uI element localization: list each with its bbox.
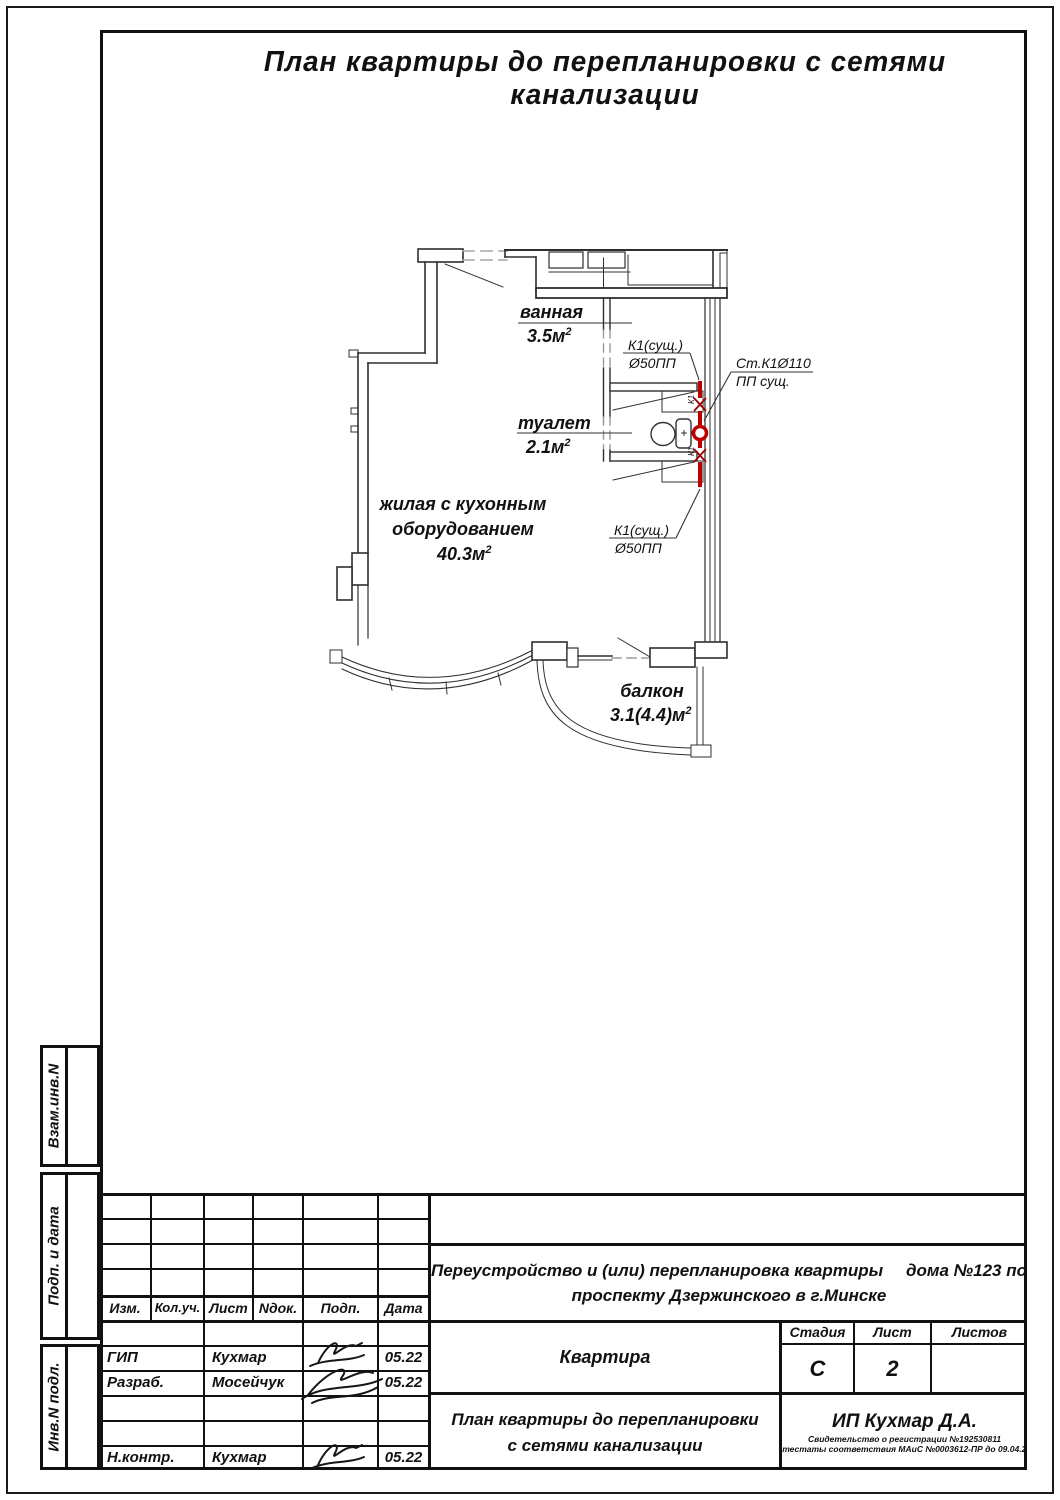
label-wc: туалет [518,413,591,433]
col-izm: Изм. [100,1295,150,1320]
col-podp: Подп. [304,1295,377,1320]
row-gip-role: ГИП [100,1345,210,1370]
object-line1b: дома №123 по [906,1258,1027,1284]
col-koluch: Кол.уч. [152,1295,203,1320]
svg-text:К1(сущ.): К1(сущ.) [628,337,683,353]
stamp-podp-data: Подп. и дата [40,1172,100,1340]
row-razrab-date: 05.22 [379,1370,428,1395]
col-list: Лист [205,1295,252,1320]
toilet-icon [651,419,691,448]
sheet-title-line1: План квартиры до перепланировки [451,1407,758,1433]
svg-text:40.3м2: 40.3м2 [436,544,491,564]
col-data: Дата [379,1295,428,1320]
svg-text:3.5м2: 3.5м2 [527,326,571,346]
row-razrab-name: Мосейчук [205,1370,309,1395]
sheets-value [932,1345,1027,1392]
svg-text:3.1(4.4)м2: 3.1(4.4)м2 [610,705,691,725]
floor-plan: К1 К1 ванная 3.5м2 туалет 2.1м2 жилая с [300,230,850,790]
title-block: Изм. Кол.уч. Лист Nдок. Подп. Дата ГИП К… [100,1193,1027,1470]
sheets-label: Листов [932,1320,1027,1343]
stamp-inv-podl: Инв.N подл. [40,1344,100,1470]
row-nkontr-role: Н.контр. [100,1445,210,1470]
row-gip-date: 05.22 [379,1345,428,1370]
stamp-inv-podl-label: Инв.N подл. [46,1362,63,1451]
row-razrab-role: Разраб. [100,1370,210,1395]
stage-label: Стадия [782,1320,853,1343]
col-ndok: Nдок. [254,1295,302,1320]
firm-cell: ИП Кухмар Д.А. Свидетельство о регистрац… [782,1395,1027,1470]
row-nkontr-date: 05.22 [379,1445,428,1470]
stamp-vzam-inv: Взам.инв.N [40,1045,100,1167]
stamp-podp-data-empty [68,1175,97,1337]
drawing-sheet: План квартиры до перепланировки с сетями… [0,0,1060,1500]
object-line2: проспекту Дзержинского в г.Минске [572,1283,887,1309]
svg-text:Ø50ПП: Ø50ПП [628,355,677,371]
pipe-mark-top: К1 [687,395,696,404]
stamp-inv-podl-empty [68,1347,97,1467]
object-line1a: Переустройство и (или) перепланировка кв… [431,1258,883,1284]
firm-certificates: Аттестаты соответствия МАиС №0003612-ПР … [782,1444,1027,1455]
stage-value: С [782,1345,853,1392]
stamp-podp-data-label: Подп. и дата [46,1206,63,1305]
pipe-annotations: К1(сущ.) Ø50ПП Ст.К1Ø110 ПП сущ. К1(сущ.… [614,337,811,556]
svg-text:ПП сущ.: ПП сущ. [736,373,790,389]
firm-registration: Свидетельство о регистрации №192530811 [808,1434,1001,1445]
drawing-title: План квартиры до перепланировки с сетями… [178,46,1032,112]
label-living-1: жилая с кухонным [379,494,547,514]
label-living-2: оборудованием [392,519,534,539]
object-name: Переустройство и (или) перепланировка кв… [431,1246,1027,1320]
stamp-vzam-inv-label: Взам.инв.N [46,1064,63,1148]
row-nkontr-name: Кухмар [205,1445,309,1470]
sheet-value: 2 [855,1345,930,1392]
sheet-label: Лист [855,1320,930,1343]
firm-name: ИП Кухмар Д.А. [832,1410,977,1434]
row-gip-name: Кухмар [205,1345,309,1370]
sheet-title-line2: с сетями канализации [508,1433,703,1459]
doc-name: Квартира [431,1323,779,1392]
sheet-title-cell: План квартиры до перепланировки с сетями… [431,1395,779,1470]
svg-text:2.1м2: 2.1м2 [525,437,570,457]
svg-text:Ст.К1Ø110: Ст.К1Ø110 [736,355,811,371]
svg-text:Ø50ПП: Ø50ПП [614,540,663,556]
label-balcony: балкон [620,681,684,701]
label-bath: ванная [520,302,583,322]
stamp-vzam-inv-empty [68,1048,97,1164]
svg-text:К1(сущ.): К1(сущ.) [614,522,669,538]
